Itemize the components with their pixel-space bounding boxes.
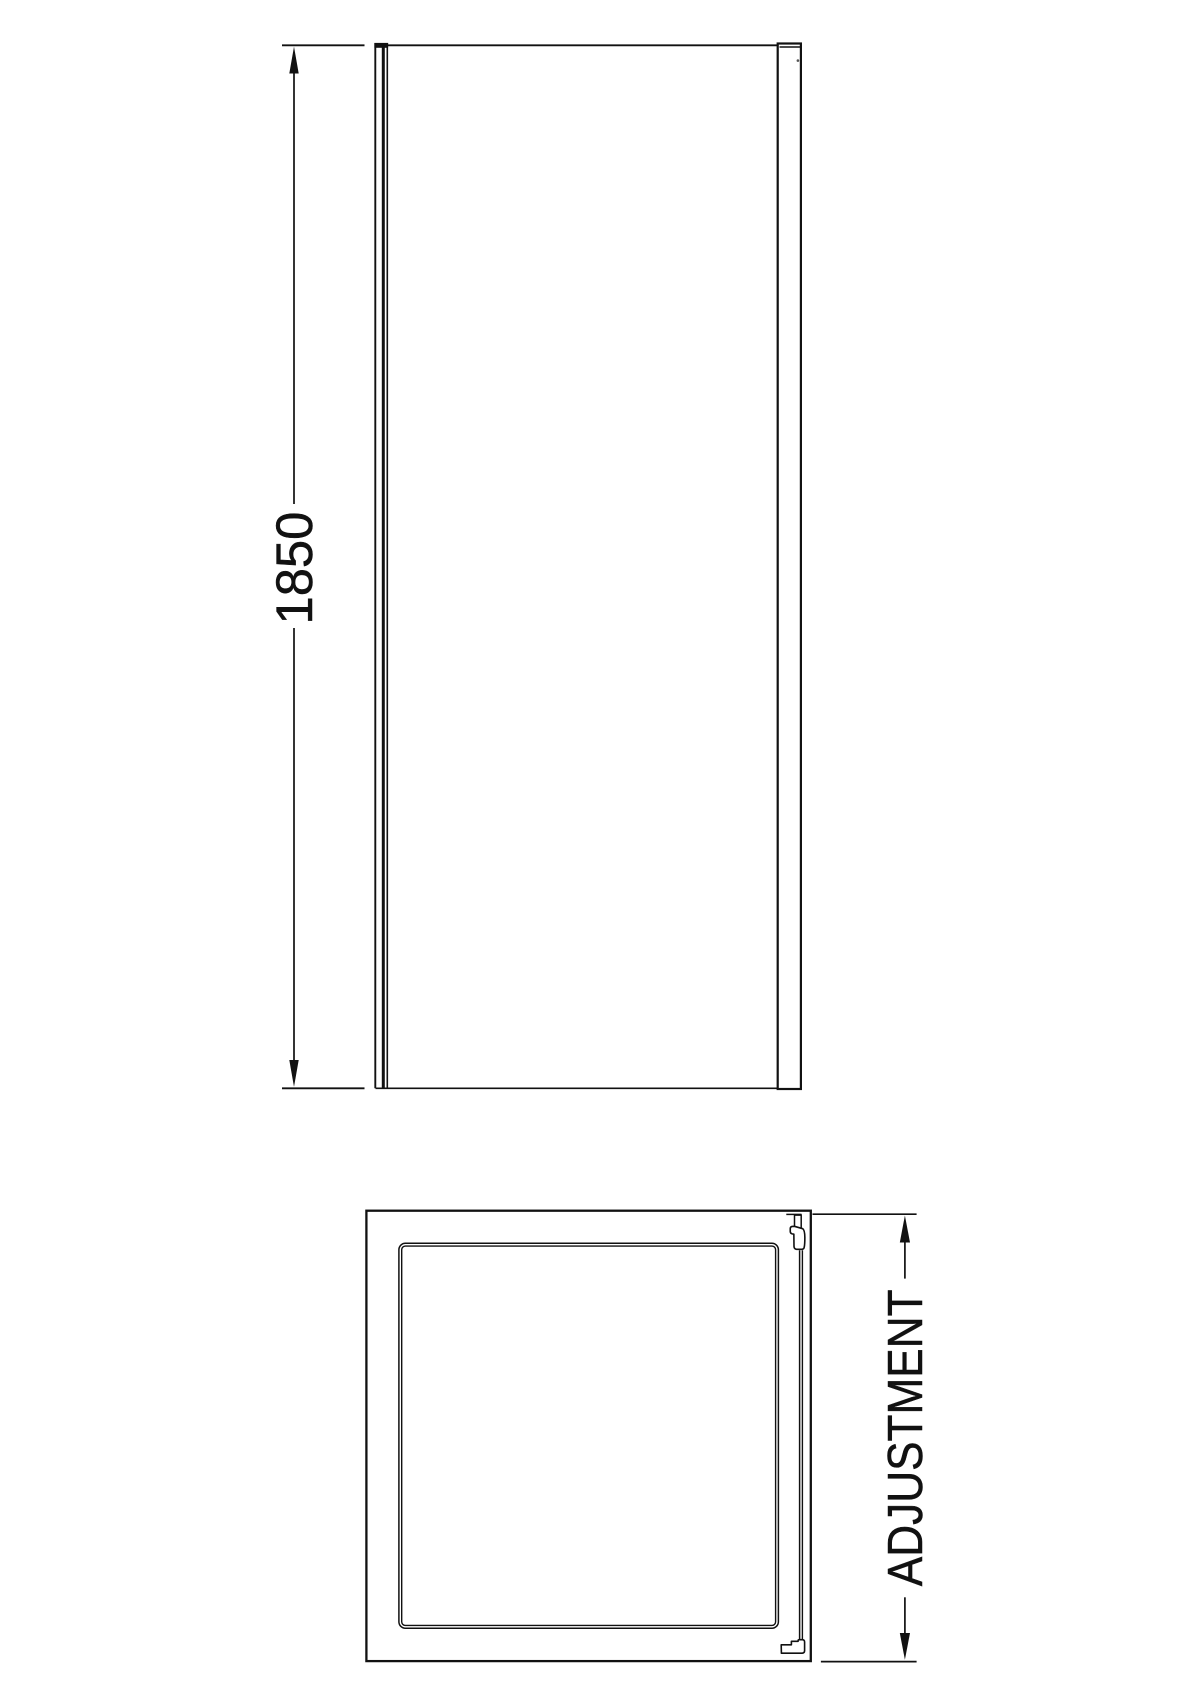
svg-text:ADJUSTMENT: ADJUSTMENT (878, 1289, 933, 1586)
svg-text:1850: 1850 (265, 512, 323, 625)
